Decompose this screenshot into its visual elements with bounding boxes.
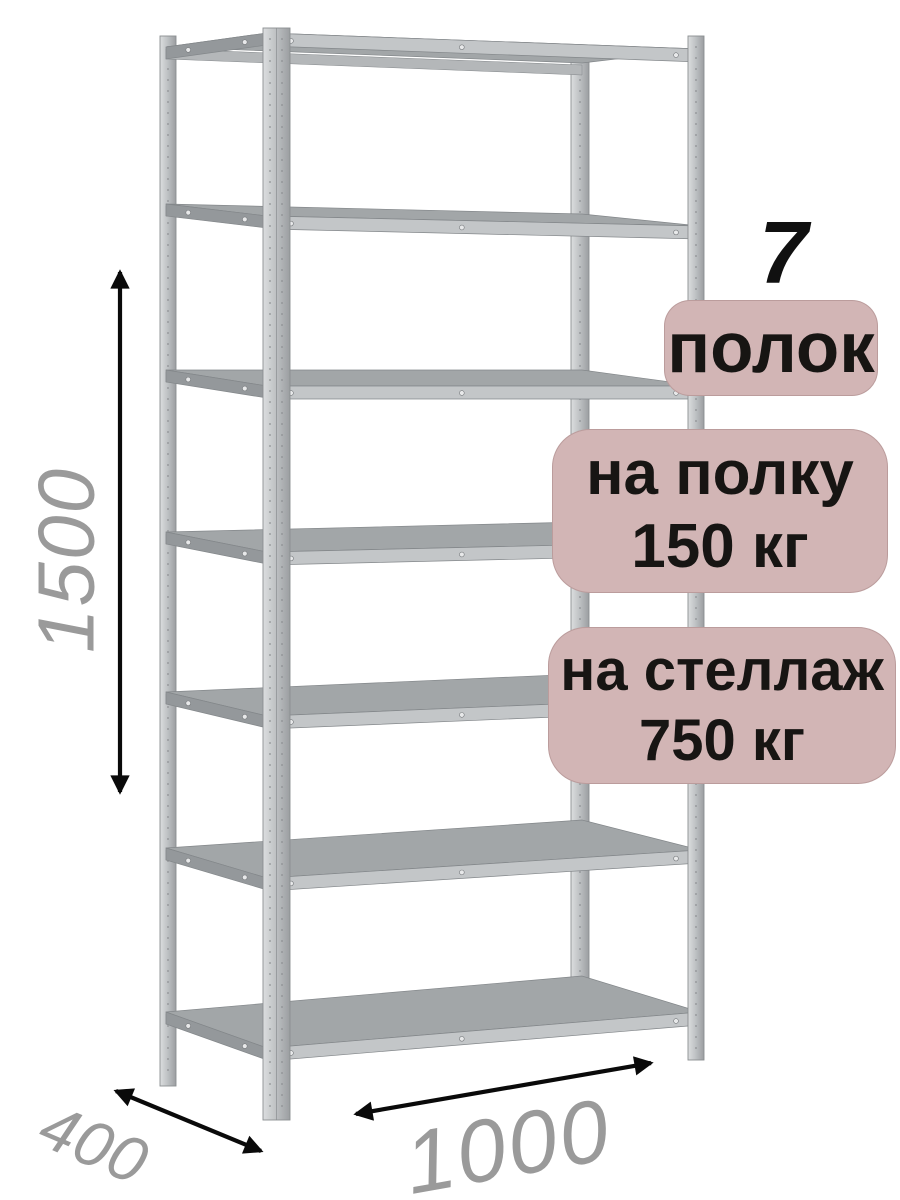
screw xyxy=(186,701,191,706)
rack-post xyxy=(160,36,176,1086)
screw xyxy=(674,1019,679,1024)
shelving-rack xyxy=(160,28,704,1120)
product-image: 1500 400 1000 7 полок на полку 150 кг на… xyxy=(0,0,900,1200)
screw xyxy=(459,45,464,50)
screw xyxy=(674,391,679,396)
width-dimension: 1000 xyxy=(356,1063,651,1200)
screw xyxy=(242,714,247,719)
shelf-part xyxy=(267,386,700,399)
screw xyxy=(459,391,464,396)
screw xyxy=(459,713,464,718)
screw xyxy=(242,386,247,391)
screw xyxy=(186,48,191,53)
screw xyxy=(674,53,679,58)
screw xyxy=(242,875,247,880)
screw xyxy=(186,210,191,215)
screw xyxy=(242,1044,247,1049)
height-dimension-label: 1500 xyxy=(22,467,111,653)
screw xyxy=(242,40,247,45)
depth-dimension: 400 xyxy=(29,1089,261,1198)
screw xyxy=(459,552,464,557)
screw xyxy=(242,551,247,556)
screw xyxy=(674,230,679,235)
screw xyxy=(459,870,464,875)
screw xyxy=(186,377,191,382)
screw xyxy=(459,1036,464,1041)
screw xyxy=(459,225,464,230)
screw xyxy=(186,540,191,545)
height-dimension: 1500 xyxy=(22,272,121,792)
screw xyxy=(242,217,247,222)
screw xyxy=(674,856,679,861)
product-illustration: 1500 400 1000 xyxy=(0,0,900,1200)
screw xyxy=(186,858,191,863)
width-dimension-label: 1000 xyxy=(397,1079,619,1200)
screw xyxy=(674,704,679,709)
screw xyxy=(186,1024,191,1029)
depth-dimension-label: 400 xyxy=(29,1089,158,1198)
screw xyxy=(674,547,679,552)
